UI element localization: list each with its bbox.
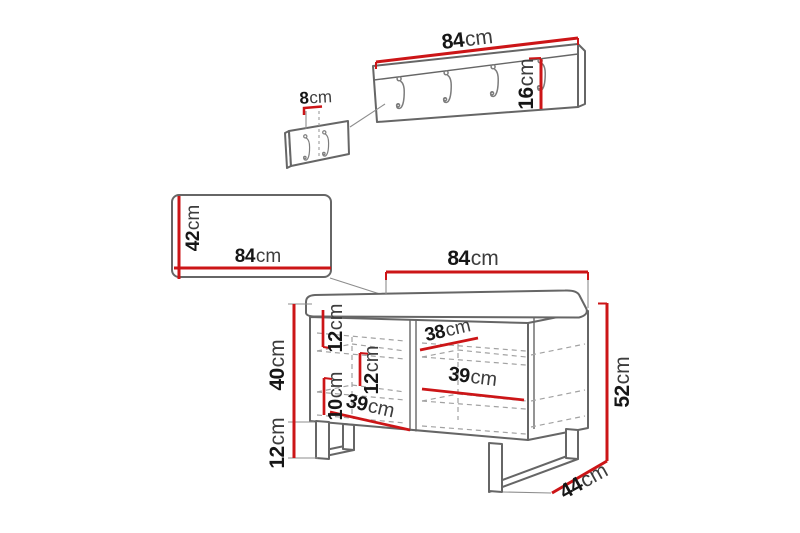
bench-leg-post [566,429,578,459]
dim-bench-bottom-gap: 10cm [325,372,347,421]
dim-rack-height: 16cm [515,58,538,109]
coat-rack-side-face [578,44,585,107]
diagram-canvas: 84cm 16cm 8cm 42cm 84cm [0,0,800,533]
bench-cushion [306,290,587,317]
bench-leg-post [316,421,329,459]
dim-bench-body-height: 40cm [266,339,289,390]
dim-bench-leg-height: 12cm [266,417,289,468]
dim-panel-height: 42cm [183,205,204,251]
bench-leg-post [343,424,354,450]
shoe-bench: 84cm 40cm 12cm 52cm 44cm 12cm 12cm 10cm … [266,247,634,504]
dim-hook-spacing: 8cm [299,87,333,108]
furniture-dimension-diagram: 84cm 16cm 8cm 42cm 84cm [0,0,800,533]
dim-bench-top-gap: 12cm [325,304,347,353]
wall-panel: 42cm 84cm [172,195,386,296]
dim-bench-total-height: 52cm [611,356,634,407]
extension-line [503,492,551,493]
dim-bench-depth: 44cm [556,459,612,504]
dim-panel-width: 84cm [235,246,281,267]
dim-bench-middle-gap: 12cm [361,346,383,395]
hook-spacing-detail: 8cm [285,87,385,168]
bench-leg-post [489,443,502,492]
coat-rack-front-face [373,44,578,122]
coat-rack: 84cm 16cm [373,25,585,122]
bench-side-face [528,311,588,440]
dim-bench-width: 84cm [447,247,498,270]
